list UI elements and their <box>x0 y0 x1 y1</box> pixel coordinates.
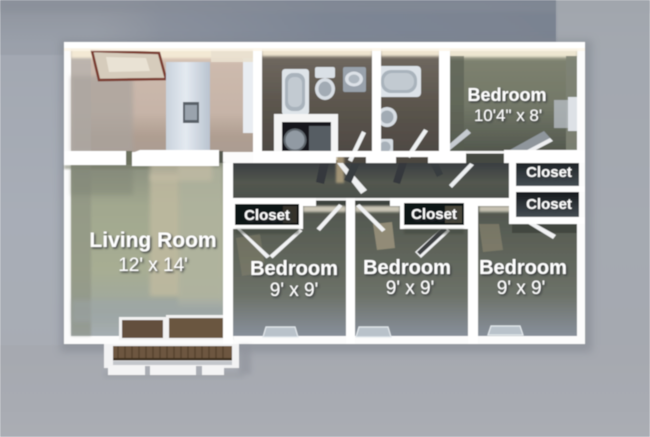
svg-text:Bedroom: Bedroom <box>363 257 451 279</box>
svg-text:9' x 9': 9' x 9' <box>497 278 545 299</box>
svg-text:Closet: Closet <box>244 207 290 224</box>
svg-text:10'4" x 8': 10'4" x 8' <box>474 106 542 125</box>
svg-text:9' x 9': 9' x 9' <box>386 278 434 299</box>
svg-text:Closet: Closet <box>526 164 572 181</box>
svg-text:Bedroom: Bedroom <box>467 85 546 105</box>
svg-text:Bedroom: Bedroom <box>250 258 338 280</box>
svg-text:9' x 9': 9' x 9' <box>270 280 318 301</box>
svg-text:Living Room: Living Room <box>89 229 216 252</box>
svg-text:Closet: Closet <box>526 196 572 213</box>
svg-text:Closet: Closet <box>411 206 457 223</box>
svg-text:12' x 14': 12' x 14' <box>118 255 188 276</box>
svg-text:Bedroom: Bedroom <box>479 257 567 279</box>
